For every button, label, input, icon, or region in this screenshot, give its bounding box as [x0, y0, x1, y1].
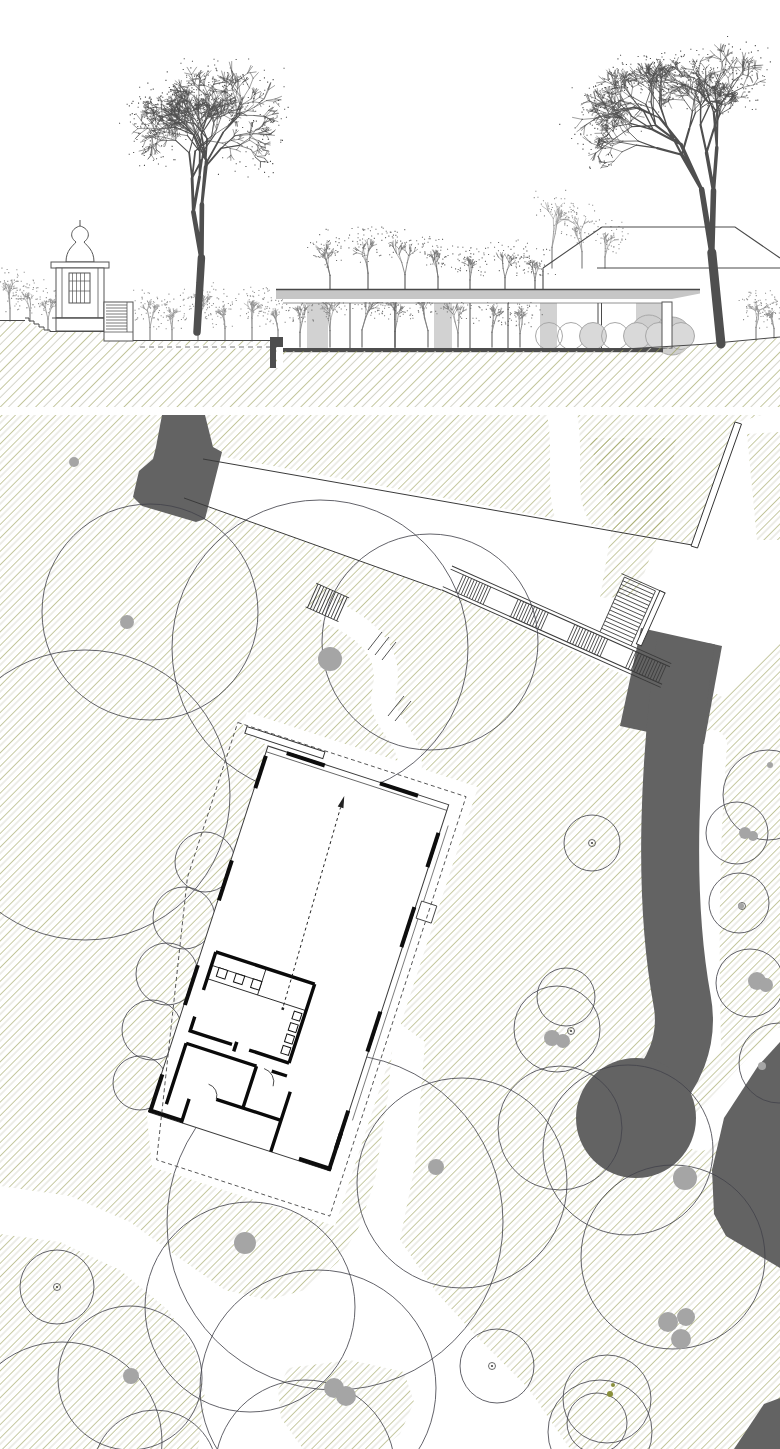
trunk-dot: [758, 1062, 766, 1070]
tree-ring-center: [570, 1030, 572, 1032]
trees-behind-roof: [307, 227, 556, 291]
end-wall: [662, 302, 672, 348]
trunk-dot: [748, 831, 758, 841]
trunk-dot: [123, 1368, 139, 1384]
shrub: [485, 240, 531, 291]
glass-band-bg: [283, 299, 672, 348]
shrub: [205, 296, 241, 340]
trunk-dot: [428, 1159, 444, 1175]
trunk-dot: [120, 615, 134, 629]
river-band: [650, 640, 686, 1098]
shrub: [534, 190, 577, 268]
onion-dome: [66, 226, 94, 262]
background-gable-house: [543, 227, 780, 289]
drawing-canvas: [0, 0, 780, 1449]
shrub: [5, 280, 44, 321]
garden-elevation: [0, 37, 780, 408]
trunk-dot: [738, 903, 744, 909]
balustrade-circle: [580, 323, 607, 350]
trunk-dot: [767, 762, 773, 768]
trunk-dot: [673, 1166, 697, 1190]
architectural-drawing-sheet: [0, 0, 780, 1449]
tree-ring-center: [56, 1286, 58, 1288]
shrub-dot: [607, 1391, 613, 1397]
site-plan: [0, 414, 780, 1449]
shrub: [379, 230, 431, 291]
trunk-dot: [759, 978, 773, 992]
shrub: [307, 229, 345, 291]
shrub: [591, 221, 629, 269]
shrub: [153, 295, 194, 340]
tree-ring-center: [591, 842, 593, 844]
garden-pavilion: [276, 227, 700, 355]
trunk-dot: [556, 1034, 570, 1048]
trunk-dot: [671, 1329, 691, 1349]
trunk-dot: [658, 1312, 678, 1332]
shrub: [516, 249, 556, 291]
shrub: [561, 204, 600, 268]
gazebo-cornice: [51, 262, 109, 268]
gazebo-base: [56, 318, 104, 331]
garden-stair-block: [104, 302, 133, 341]
gazebo: [51, 220, 109, 331]
tree-ring-center: [491, 1365, 493, 1367]
big-tree-1: [119, 59, 289, 332]
shrub: [415, 237, 454, 291]
shrub: [452, 246, 487, 291]
trunk-dot: [318, 647, 342, 671]
shrub: [0, 268, 25, 321]
trunk-dot: [234, 1232, 256, 1254]
trunk-dot: [336, 1386, 356, 1406]
trunk-dot: [677, 1308, 695, 1326]
shrub-dot: [611, 1383, 615, 1387]
shrub: [133, 290, 169, 340]
roof-slab: [276, 290, 700, 299]
trunk-dot: [69, 457, 79, 467]
shrub: [339, 227, 387, 291]
